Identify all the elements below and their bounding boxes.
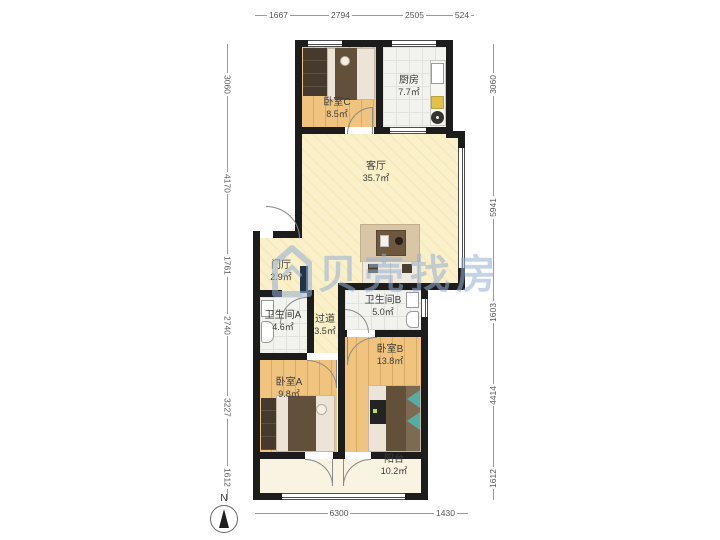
wall	[253, 452, 305, 459]
room-name: 卧室A	[276, 377, 303, 389]
window	[282, 493, 405, 500]
bedroom-c-wardrobe	[303, 48, 327, 96]
dim-value: 3060	[223, 73, 232, 96]
room-label-hallway: 过道 3.5㎡	[314, 314, 336, 336]
dim-value: 524	[453, 11, 471, 20]
wall	[307, 290, 314, 353]
sofa-pillow-right	[402, 264, 412, 273]
room-name: 厨房	[398, 75, 420, 87]
room-name: 卫生间A	[265, 310, 302, 322]
room-name: 客厅	[363, 161, 390, 173]
dim-top-2: 2794	[302, 10, 379, 20]
dim-value: 1761	[223, 254, 232, 277]
room-area: 9.8㎡	[276, 389, 303, 399]
wall	[374, 127, 390, 134]
dim-value: 1612	[489, 467, 498, 490]
bedroom-a-pillow	[316, 404, 327, 415]
dim-left-5: 3227	[221, 360, 233, 455]
door-leaf	[343, 459, 344, 486]
room-name: 卫生间B	[365, 295, 402, 307]
dim-right-1: 3060	[487, 44, 499, 125]
door-leaf	[347, 337, 348, 365]
dim-value: 3227	[223, 396, 232, 419]
dim-value: 4414	[489, 384, 498, 407]
door-leaf	[372, 107, 373, 134]
dim-right-4: 4414	[487, 334, 499, 456]
room-label-bedroom-a: 卧室A 9.8㎡	[276, 377, 303, 399]
entry-door-leaf	[300, 266, 308, 293]
room-name: 卧室C	[323, 97, 350, 109]
floorplan-page: { "watermark": { "text": "贝壳找房" }, "comp…	[0, 0, 720, 540]
room-area: 10.2㎡	[381, 466, 408, 476]
dim-value: 1612	[223, 466, 232, 489]
door-leaf	[332, 459, 333, 486]
dim-right-2: 5941	[487, 125, 499, 290]
room-area: 5.0㎡	[365, 307, 402, 317]
kitchen-cabinet	[431, 96, 444, 109]
compass: N	[207, 494, 241, 533]
dim-value: 4170	[223, 172, 232, 195]
bathroom-b-sink	[406, 292, 419, 308]
dim-bottom-1: 6300	[255, 508, 423, 518]
bedroom-a-wardrobe	[261, 398, 276, 450]
compass-circle	[210, 505, 238, 533]
room-label-bedroom-c: 卧室C 8.5㎡	[323, 97, 350, 119]
sofa-pillow-left	[368, 264, 378, 273]
room-label-living-room: 客厅 35.7㎡	[363, 161, 390, 183]
wall	[376, 47, 383, 134]
dim-left-3: 1761	[221, 241, 233, 290]
table-teapot	[395, 237, 403, 245]
room-area: 7.7㎡	[398, 87, 420, 97]
room-area: 3.5㎡	[314, 326, 336, 336]
wall	[295, 127, 345, 134]
dim-left-2: 4170	[221, 125, 233, 241]
dim-bottom-2: 1430	[423, 508, 468, 518]
dim-value: 5941	[489, 196, 498, 219]
window	[308, 40, 342, 47]
wall	[333, 452, 343, 459]
table-book	[380, 235, 389, 247]
room-area: 8.5㎡	[323, 109, 350, 119]
room-label-bathroom-a: 卫生间A 4.6㎡	[265, 310, 302, 332]
sliding-door-kitchen	[390, 127, 426, 134]
room-label-kitchen: 厨房 7.7㎡	[398, 75, 420, 97]
wall	[338, 283, 345, 459]
compass-needle-icon	[219, 509, 229, 528]
wall	[338, 283, 465, 290]
dim-right-3: 1603	[487, 290, 499, 334]
dim-value: 6300	[328, 509, 351, 518]
bathroom-b-toilet	[406, 311, 419, 328]
dim-value: 2794	[329, 11, 352, 20]
dim-value: 1430	[434, 509, 457, 518]
bedroom-b-blanket	[386, 386, 406, 451]
kitchen-stove-knob	[436, 116, 439, 119]
compass-north-label: N	[207, 494, 241, 504]
kitchen-sink	[431, 63, 444, 84]
dim-value: 2505	[403, 11, 426, 20]
dim-value: 3060	[489, 73, 498, 96]
dim-top-3: 2505	[379, 10, 450, 20]
wall	[295, 40, 302, 134]
window	[458, 148, 465, 268]
bedroom-a-blanket	[288, 396, 316, 451]
dim-right-5: 1612	[487, 456, 499, 500]
bedroom-c-pillow	[340, 56, 350, 66]
room-area: 35.7㎡	[363, 173, 390, 183]
dim-top-4: 524	[450, 10, 474, 20]
room-name: 门厅	[270, 260, 292, 272]
dim-left-1: 3060	[221, 44, 233, 125]
room-name: 阳台	[381, 454, 408, 466]
room-name: 卧室B	[377, 344, 404, 356]
dim-left-4: 2740	[221, 290, 233, 360]
dim-value: 1603	[489, 301, 498, 324]
door-leaf	[336, 360, 337, 388]
window	[392, 40, 436, 47]
room-label-entry-hall: 门厅 2.9㎡	[270, 260, 292, 282]
wall	[253, 353, 307, 360]
room-label-bathroom-b: 卫生间B 5.0㎡	[365, 295, 402, 317]
room-name: 过道	[314, 314, 336, 326]
room-area: 4.6㎡	[265, 322, 302, 332]
wall	[446, 40, 453, 138]
room-area: 2.9㎡	[270, 272, 292, 282]
room-area: 13.8㎡	[377, 356, 404, 366]
dim-value: 1667	[267, 11, 290, 20]
room-label-bedroom-b: 卧室B 13.8㎡	[377, 344, 404, 366]
window	[421, 299, 428, 317]
dim-top-1: 1667	[255, 10, 302, 20]
dim-value: 2740	[223, 314, 232, 337]
room-label-balcony: 阳台 10.2㎡	[381, 454, 408, 476]
wall	[253, 231, 260, 500]
wall	[253, 290, 282, 297]
bedroom-b-tv-light	[373, 409, 377, 413]
